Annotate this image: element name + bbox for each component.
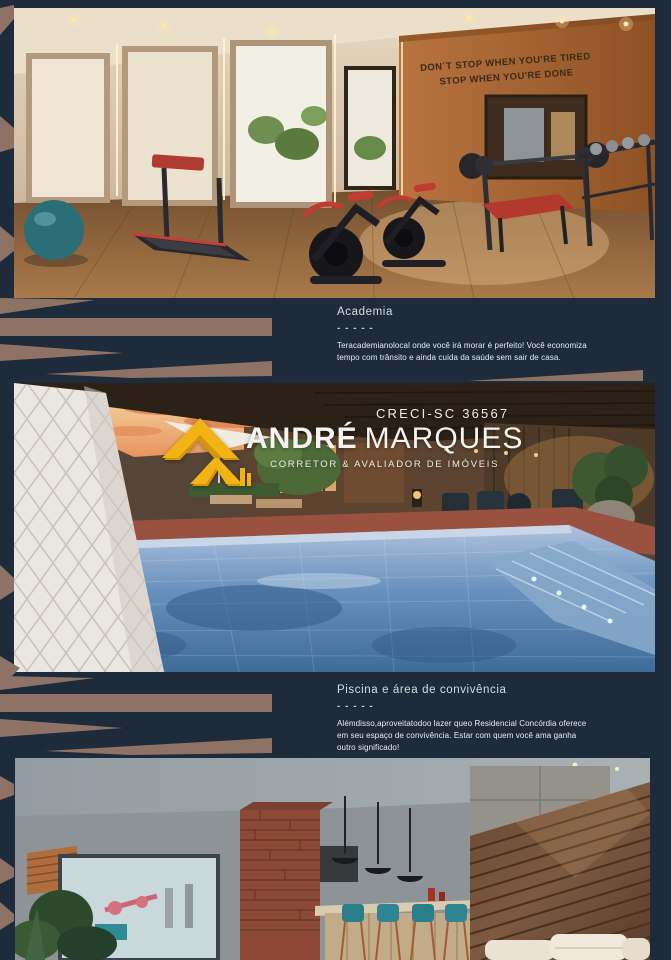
- gourmet-render: [15, 758, 650, 960]
- brand-creci: CRECI-SC 36567: [246, 406, 523, 421]
- academia-description: Teracademianolocal onde você irá morar é…: [337, 340, 589, 364]
- brand-text: CRECI-SC 36567 ANDRÉMARQUES CORRETOR & A…: [246, 404, 523, 470]
- academia-divider-dashes: - - - - -: [337, 323, 589, 334]
- watermark-logo: CRECI-SC 36567 ANDRÉMARQUES CORRETOR & A…: [156, 404, 523, 494]
- andre-marques-logo-icon: [156, 412, 252, 494]
- brand-tagline: CORRETOR & AVALIADOR DE IMÓVEIS: [246, 459, 523, 470]
- piscina-divider-dashes: - - - - -: [337, 701, 589, 712]
- flyer-page: DON´T STOP WHEN YOU'RE TIRED STOP WHEN Y…: [0, 0, 671, 960]
- section-academia-title: Academia: [337, 306, 589, 318]
- section-piscina-title: Piscina e área de convivência: [337, 684, 589, 696]
- section-piscina: Piscina e área de convivência - - - - - …: [337, 684, 589, 754]
- brand-first-name: ANDRÉ: [246, 422, 358, 455]
- brand-name: ANDRÉMARQUES: [246, 423, 523, 455]
- brand-last-name: MARQUES: [365, 422, 524, 455]
- photo-gym: DON´T STOP WHEN YOU'RE TIRED STOP WHEN Y…: [14, 8, 655, 298]
- piscina-description: Alémdisso,aproveitatodoo lazer queo Resi…: [337, 718, 589, 754]
- photo-gourmet: [15, 758, 650, 960]
- section-academia: Academia - - - - - Teracademianolocal on…: [337, 306, 589, 364]
